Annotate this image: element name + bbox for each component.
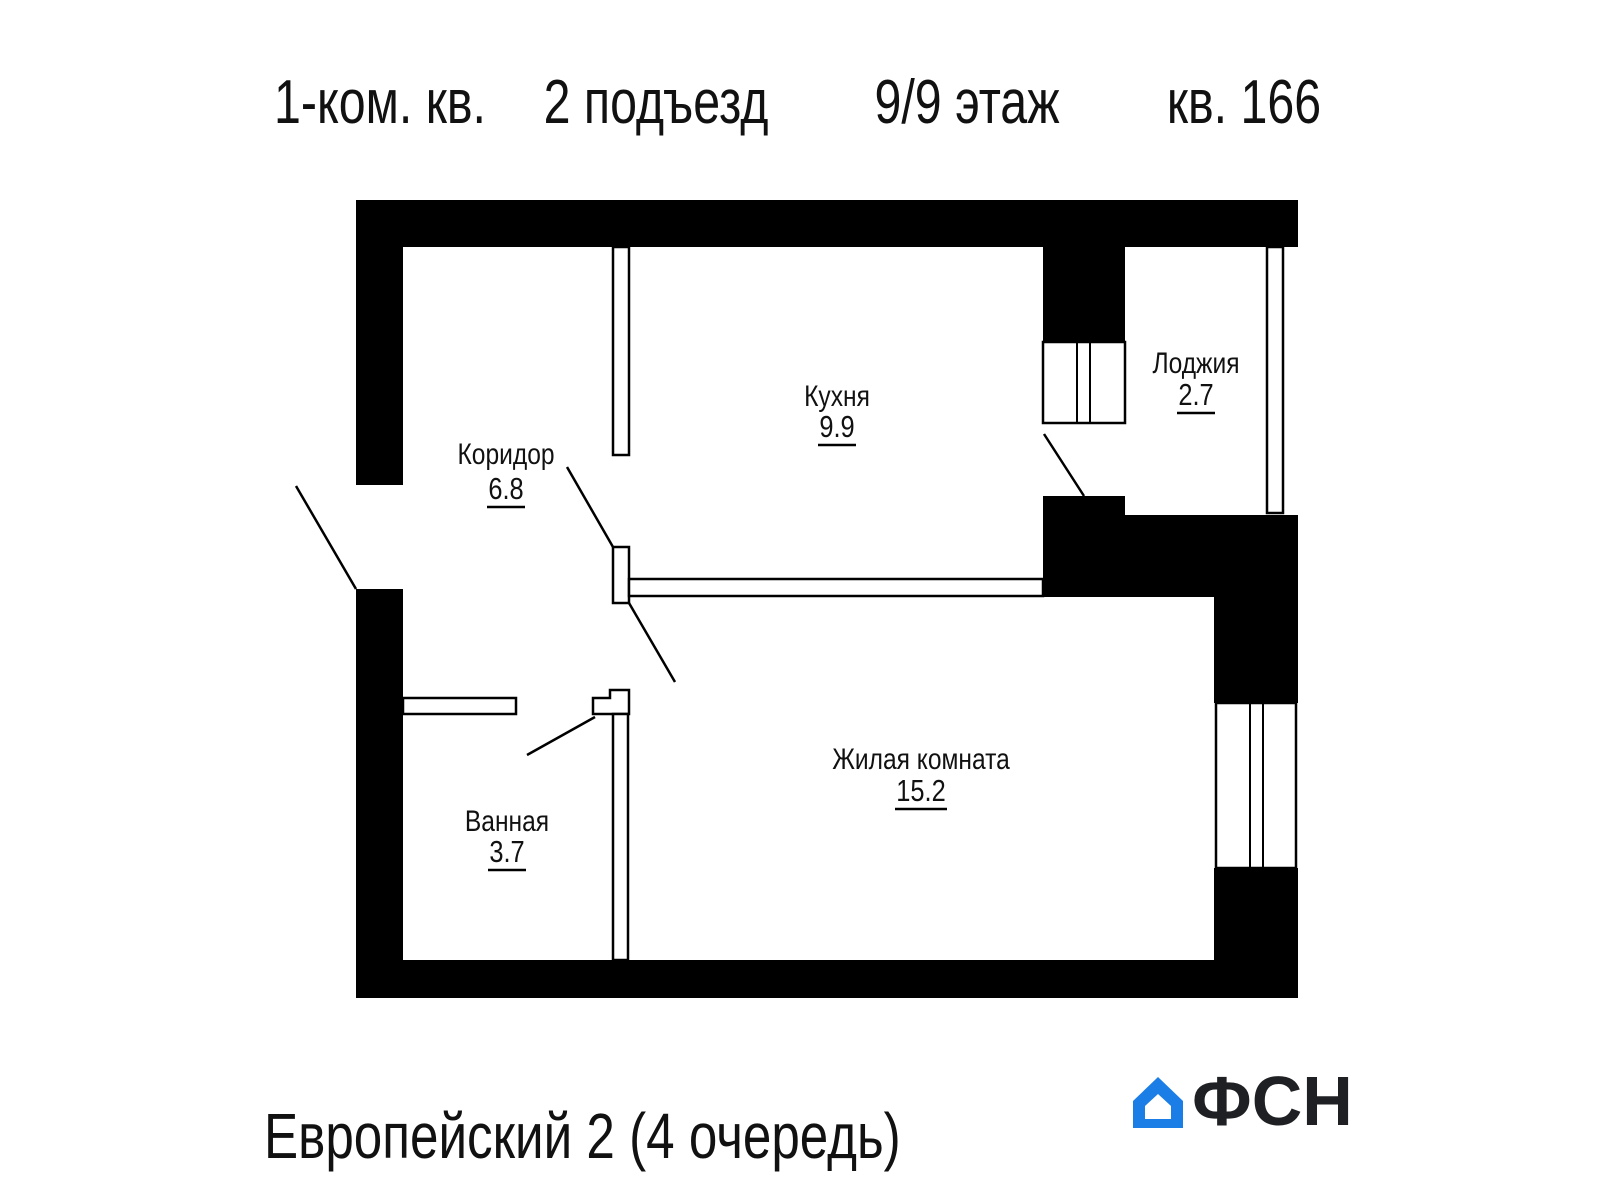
wall-left-lower — [356, 589, 403, 998]
door-jamb-corridor — [613, 547, 629, 603]
project-name: Европейский 2 (4 очередь) — [264, 1102, 901, 1173]
wall-top — [356, 200, 1298, 247]
partition-bathroom-top — [403, 698, 516, 714]
floor-plan-canvas: 1-ком. кв. 2 подъезд 9/9 этаж кв. 166 — [0, 0, 1600, 1200]
loggia-door-swing — [1044, 434, 1084, 496]
loggia-glazing — [1267, 247, 1283, 513]
wall-loggia-livingroom — [1125, 515, 1298, 597]
partition-corridor-kitchen — [613, 247, 629, 455]
room-name-livingroom: Жилая комната — [832, 742, 1010, 776]
livingroom-window — [1216, 703, 1296, 868]
logo-text: ФСН — [1192, 1062, 1353, 1140]
kitchen-loggia-window — [1043, 342, 1125, 423]
room-name-bathroom: Ванная — [465, 804, 549, 838]
room-area-loggia: 2.7 — [1178, 378, 1213, 413]
room-label-bathroom: Ванная 3.7 — [465, 804, 549, 870]
door-jamb-bathroom — [593, 690, 629, 714]
partition-kitchen-livingroom — [629, 579, 1043, 596]
wall-right-upper — [1214, 597, 1298, 703]
bathroom-door-swing — [527, 717, 595, 755]
room-area-kitchen: 9.9 — [819, 410, 854, 445]
livingroom-window-frame — [1216, 703, 1296, 868]
wall-left-upper — [356, 200, 403, 485]
wall-kitchen-loggia-lower — [1043, 496, 1125, 597]
room-area-livingroom: 15.2 — [896, 774, 945, 809]
room-label-livingroom: Жилая комната 15.2 — [832, 742, 1010, 809]
wall-bottom — [356, 960, 1298, 998]
fsn-logo: ФСН — [1133, 1062, 1353, 1140]
room-area-corridor: 6.8 — [488, 472, 523, 507]
room-label-loggia: Лоджия 2.7 — [1152, 346, 1239, 413]
wall-right-lower — [1214, 868, 1298, 998]
title-floor: 9/9 этаж — [874, 67, 1059, 136]
room-labels: Коридор 6.8 Кухня 9.9 Лоджия 2.7 Ванная … — [457, 346, 1239, 870]
livingroom-door-swing — [629, 603, 675, 682]
room-name-loggia: Лоджия — [1152, 346, 1239, 380]
title-apartment-number: кв. 166 — [1167, 67, 1321, 136]
title-entrance: 2 подъезд — [544, 67, 769, 136]
exterior-walls — [356, 200, 1298, 998]
wall-kitchen-loggia-upper — [1043, 247, 1125, 342]
floor-plan-page: 1-ком. кв. 2 подъезд 9/9 этаж кв. 166 — [0, 0, 1600, 1200]
room-area-bathroom: 3.7 — [489, 835, 524, 870]
room-name-kitchen: Кухня — [804, 379, 870, 413]
kitchen-door-swing — [567, 467, 613, 547]
entrance-door-swing — [296, 486, 356, 589]
room-label-corridor: Коридор 6.8 — [457, 437, 554, 507]
title-unit-type: 1-ком. кв. — [274, 67, 486, 136]
plan-title: 1-ком. кв. 2 подъезд 9/9 этаж кв. 166 — [274, 67, 1321, 136]
kitchen-loggia-window-frame — [1043, 342, 1125, 423]
partition-bathroom-right — [613, 714, 628, 960]
room-label-kitchen: Кухня 9.9 — [804, 379, 870, 445]
footer: Европейский 2 (4 очередь) ФСН — [264, 1062, 1353, 1172]
room-name-corridor: Коридор — [457, 437, 554, 471]
